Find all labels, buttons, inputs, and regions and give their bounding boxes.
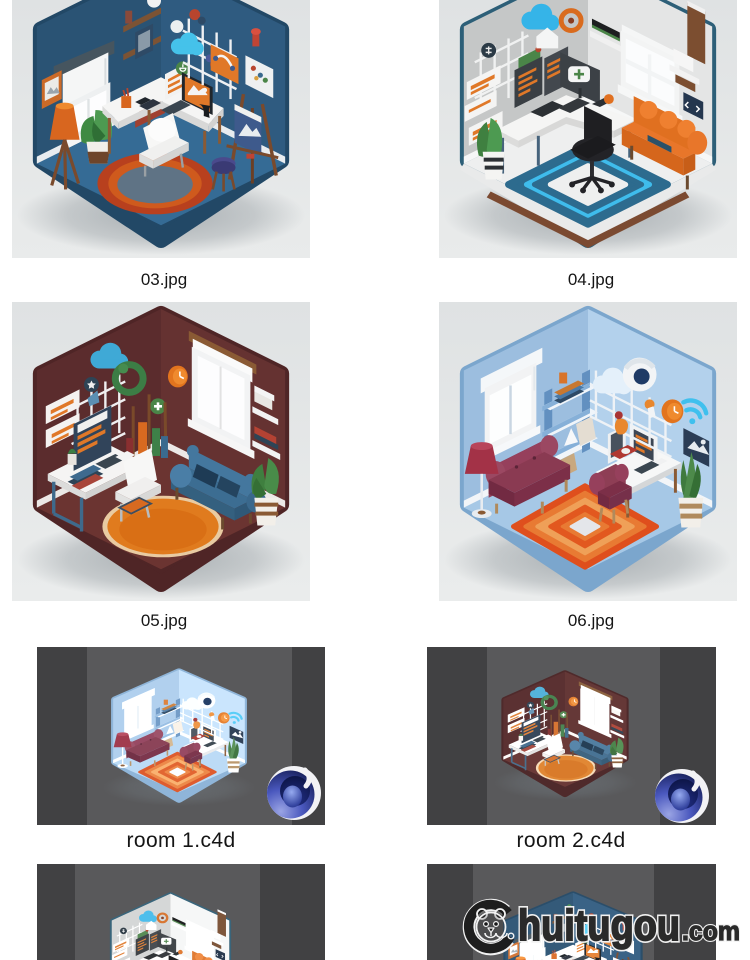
- svg-text:huitugou: huitugou: [518, 901, 680, 950]
- svg-text:.com: .com: [682, 916, 740, 946]
